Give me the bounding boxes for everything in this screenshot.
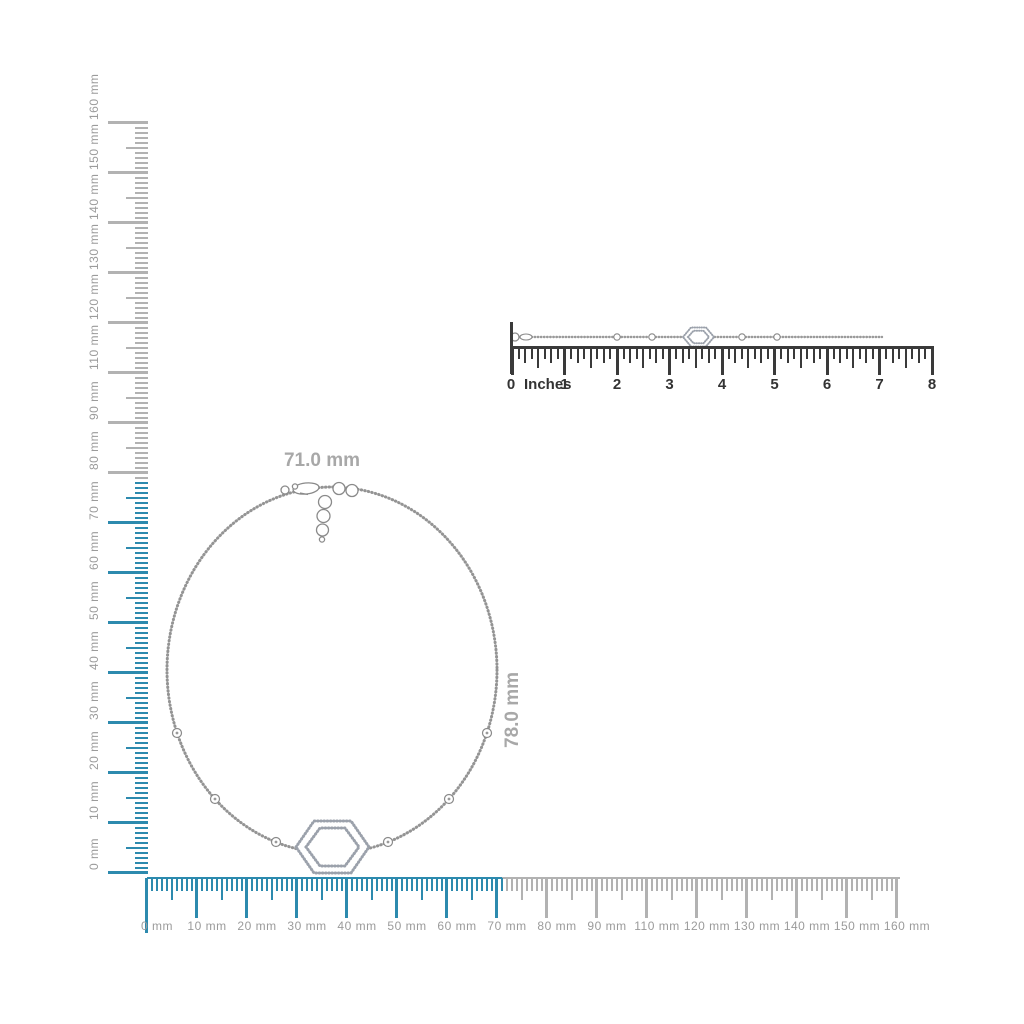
v-ruler-tick [135,852,148,854]
v-ruler-tick [135,127,148,129]
v-ruler-tick [135,437,148,439]
v-ruler-tick [108,171,148,174]
v-ruler-tick [135,612,148,614]
inch-ruler-tick [511,348,514,375]
inch-ruler-tick [531,348,533,359]
v-ruler-tick [135,287,148,289]
h-ruler-tick [651,878,653,891]
v-ruler-tick [135,537,148,539]
v-ruler-tick [135,387,148,389]
v-ruler-tick [126,747,148,749]
v-ruler-tick [108,871,148,874]
h-ruler-tick [406,878,408,891]
lobster-clasp [281,482,358,497]
inches-number-label: 7 [875,376,883,393]
v-ruler-tick [135,712,148,714]
v-ruler-tick [108,271,148,274]
inch-ruler-tick [741,348,743,359]
v-ruler-tick [135,187,148,189]
h-ruler-tick [711,878,713,891]
v-ruler-tick [108,221,148,224]
h-ruler-tick [271,878,273,900]
v-ruler-tick [126,797,148,799]
h-ruler-tick [256,878,258,891]
h-ruler-tick [841,878,843,891]
v-ruler-tick [135,787,148,789]
h-ruler-tick [301,878,303,891]
inches-number-label: 8 [928,376,936,393]
v-ruler-tick [135,602,148,604]
h-ruler-tick [526,878,528,891]
inch-ruler-tick [793,348,795,359]
v-ruler-tick [108,671,148,674]
h-ruler-tick [751,878,753,891]
v-ruler-tick [135,157,148,159]
inch-ruler-tick [911,348,913,359]
h-ruler-tick [845,878,848,918]
h-ruler-tick [166,878,168,891]
h-ruler-tick [595,878,598,918]
v-ruler-tick [135,752,148,754]
inch-ruler-tick [924,348,926,359]
v-ruler-tick [135,662,148,664]
v-ruler-tick [135,542,148,544]
v-ruler-tick [135,142,148,144]
v-ruler-tick [135,757,148,759]
v-ruler-tick [135,267,148,269]
inch-ruler-tick [636,348,638,359]
v-ruler-tick [135,687,148,689]
h-ruler-tick [181,878,183,891]
v-ruler-tick [135,607,148,609]
h-ruler-tick [756,878,758,891]
h-ruler-tick [616,878,618,891]
h-ruler-tick [545,878,548,918]
h-ruler-tick [481,878,483,891]
inch-ruler-tick [668,348,671,375]
v-ruler-tick [135,807,148,809]
v-ruler-tick [135,682,148,684]
v-ruler-tick [135,417,148,419]
h-ruler-tick [471,878,473,900]
h-ruler-tick [351,878,353,891]
v-ruler-tick [135,742,148,744]
v-ruler-tick [135,652,148,654]
h-ruler-tick [201,878,203,891]
h-ruler-tick [356,878,358,891]
inch-ruler-tick [773,348,776,375]
h-ruler-tick [541,878,543,891]
v-ruler-tick [135,592,148,594]
h-ruler-tick [791,878,793,891]
h-ruler-tick [231,878,233,891]
v-ruler-tick [135,617,148,619]
v-ruler-tick [135,232,148,234]
v-ruler-tick [135,707,148,709]
inch-ruler-tick [524,348,526,363]
v-ruler-tick [108,771,148,774]
h-ruler-tick [886,878,888,891]
v-ruler-tick [135,457,148,459]
inch-ruler-tick [570,348,572,359]
v-ruler-tick [135,802,148,804]
inch-ruler-tick [813,348,815,363]
h-ruler-tick [386,878,388,891]
v-ruler-tick [135,862,148,864]
v-ruler-tick [108,621,148,624]
v-ruler-tick [135,732,148,734]
inches-zero-label: 0 [507,376,515,393]
h-ruler-tick [721,878,723,900]
v-ruler-tick [135,132,148,134]
h-ruler-tick [736,878,738,891]
h-ruler-tick [571,878,573,900]
v-ruler-tick [135,432,148,434]
v-ruler-tick [135,242,148,244]
h-ruler-tick [611,878,613,891]
inch-ruler-tick [859,348,861,359]
v-ruler-tick [135,212,148,214]
h-ruler-tick [671,878,673,900]
inch-ruler-tick [518,348,520,359]
h-ruler-tick [476,878,478,891]
inch-ruler-tick [577,348,579,363]
inch-ruler-tick [767,348,769,359]
h-ruler-tick [501,878,503,891]
h-ruler-tick [566,878,568,891]
inches-unit-label: Inches [524,376,572,393]
inch-ruler-tick [590,348,592,368]
jewelry-artwork [0,0,1024,1024]
v-ruler-tick [135,637,148,639]
v-ruler-tick [135,582,148,584]
h-ruler-tick [311,878,313,891]
inch-ruler-tick [583,348,585,359]
h-ruler-tick [306,878,308,891]
v-ruler-tick [135,442,148,444]
h-ruler-label: 50 mm [387,919,426,933]
inch-ruler-tick [688,348,690,359]
v-ruler-tick [126,447,148,449]
v-ruler-tick [135,467,148,469]
v-ruler-tick [135,477,148,479]
h-ruler-tick [645,878,648,918]
inch-ruler-tick [708,348,710,363]
v-ruler-tick [126,247,148,249]
h-ruler-tick [395,878,398,918]
v-ruler-tick [135,827,148,829]
inch-ruler-tick [885,348,887,359]
v-ruler-tick [135,207,148,209]
h-ruler-tick [891,878,893,891]
v-ruler-tick [108,471,148,474]
h-ruler-tick [666,878,668,891]
v-ruler-tick [135,277,148,279]
v-ruler-tick [108,721,148,724]
h-ruler-tick [186,878,188,891]
h-ruler-tick [661,878,663,891]
v-ruler-tick [135,767,148,769]
v-ruler-tick [135,487,148,489]
v-ruler-tick [135,857,148,859]
h-ruler-label: 30 mm [287,919,326,933]
h-ruler-tick [606,878,608,891]
h-ruler-tick [811,878,813,891]
v-ruler-tick [135,832,148,834]
h-ruler-tick [491,878,493,891]
v-ruler-tick [135,812,148,814]
v-ruler-tick [135,402,148,404]
v-ruler-tick [135,317,148,319]
v-ruler-tick [135,407,148,409]
product-measurement-canvas: 160 mm150 mm140 mm130 mm120 mm110 mm90 m… [0,0,1024,1024]
v-ruler-tick [135,452,148,454]
v-ruler-tick [126,397,148,399]
v-ruler-tick [135,567,148,569]
h-ruler-tick [581,878,583,891]
v-ruler-tick [126,697,148,699]
width-measurement-label: 71.0 mm [284,450,360,472]
v-ruler-tick [135,462,148,464]
v-ruler-tick [135,262,148,264]
inch-ruler-tick [682,348,684,363]
v-ruler-tick [135,362,148,364]
inch-ruler-tick [701,348,703,359]
v-ruler-tick [135,257,148,259]
h-ruler-tick [801,878,803,891]
h-ruler-tick [441,878,443,891]
inch-ruler-tick [609,348,611,359]
v-ruler-tick [135,312,148,314]
h-ruler-tick [291,878,293,891]
h-ruler-tick [656,878,658,891]
h-ruler-tick [731,878,733,891]
v-ruler-tick [135,337,148,339]
v-ruler-tick [135,217,148,219]
h-ruler-tick [786,878,788,891]
v-ruler-tick [135,192,148,194]
v-ruler-tick [135,562,148,564]
inch-ruler-tick [537,348,539,368]
v-ruler-tick [135,482,148,484]
inch-ruler-tick [905,348,907,368]
h-ruler-tick [866,878,868,891]
inch-ruler-tick [603,348,605,363]
h-ruler-tick [681,878,683,891]
h-ruler-tick [445,878,448,918]
v-ruler-tick [135,762,148,764]
h-ruler-tick [531,878,533,891]
h-ruler-tick [591,878,593,891]
v-ruler-tick [135,657,148,659]
inch-ruler-tick [819,348,821,359]
h-ruler-label: 90 mm [587,919,626,933]
h-ruler-tick [551,878,553,891]
h-ruler-tick [826,878,828,891]
inch-ruler-tick [550,348,552,363]
h-ruler-tick [506,878,508,891]
v-ruler-tick [135,727,148,729]
pendant-hexagon [296,821,369,873]
h-ruler-label: 0 mm [141,919,173,933]
h-ruler-tick [411,878,413,891]
inch-ruler-tick [623,348,625,359]
v-ruler-tick [135,632,148,634]
v-ruler-tick [126,847,148,849]
inch-ruler-tick [655,348,657,363]
v-ruler-tick [135,782,148,784]
v-ruler-tick [135,182,148,184]
h-ruler-tick [851,878,853,891]
v-ruler-tick [126,597,148,599]
v-ruler-tick [135,152,148,154]
inch-ruler-tick [800,348,802,368]
inch-ruler-tick [695,348,697,368]
v-ruler-tick [135,162,148,164]
h-ruler-tick [701,878,703,891]
h-ruler-tick [466,878,468,891]
v-ruler-tick [135,342,148,344]
v-ruler-tick [135,667,148,669]
h-ruler-tick [241,878,243,891]
v-ruler-tick [135,392,148,394]
h-ruler-tick [366,878,368,891]
v-ruler-tick [135,502,148,504]
h-ruler-tick [216,878,218,891]
v-ruler-tick [135,292,148,294]
h-ruler-tick [716,878,718,891]
inline-chain [511,328,882,347]
h-ruler-tick [861,878,863,891]
h-ruler-label: 70 mm [487,919,526,933]
inch-ruler-tick [839,348,841,363]
h-ruler-tick [151,878,153,891]
v-ruler-tick [135,507,148,509]
inch-ruler-tick [616,348,619,375]
inch-ruler-tick [872,348,874,359]
h-ruler-tick [821,878,823,900]
v-ruler-tick [135,777,148,779]
h-ruler-label: 10 mm [187,919,226,933]
h-ruler-tick [461,878,463,891]
h-ruler-tick [641,878,643,891]
inch-ruler-tick [754,348,756,359]
h-ruler-tick [316,878,318,891]
inch-ruler-tick [780,348,782,359]
inches-number-label: 4 [718,376,726,393]
h-ruler-tick [326,878,328,891]
v-ruler-tick [135,702,148,704]
inch-ruler-tick [760,348,762,363]
inch-ruler-tick [918,348,920,363]
v-ruler-tick [135,587,148,589]
h-ruler-label: 160 mm [884,919,930,933]
v-ruler-tick [108,421,148,424]
inch-ruler-tick [662,348,664,359]
h-ruler-label: 110 mm [634,919,679,933]
h-ruler-tick [341,878,343,891]
inch-ruler-tick [629,348,631,363]
v-ruler-tick [108,571,148,574]
inch-ruler-tick [557,348,559,359]
v-ruler-tick [135,627,148,629]
h-ruler-tick [191,878,193,891]
inch-ruler-tick [806,348,808,359]
inch-ruler-tick [675,348,677,359]
inch-ruler-tick [649,348,651,359]
v-ruler-tick [135,307,148,309]
v-ruler-tick [108,121,148,124]
h-ruler-tick [806,878,808,891]
h-ruler-tick [221,878,223,900]
h-ruler-tick [536,878,538,891]
h-ruler-label: 140 mm [784,919,830,933]
h-ruler-tick [856,878,858,891]
h-ruler-tick [401,878,403,891]
v-ruler-tick [135,332,148,334]
inch-ruler-tick [898,348,900,359]
v-ruler-tick [126,197,148,199]
h-ruler-tick [206,878,208,891]
v-ruler-tick [135,532,148,534]
extension-chain [317,496,332,543]
h-ruler-tick [626,878,628,891]
h-ruler-tick [876,878,878,891]
v-ruler-tick [135,237,148,239]
h-ruler-tick [636,878,638,891]
h-ruler-tick [371,878,373,900]
v-ruler-tick [108,371,148,374]
h-ruler-tick [695,878,698,918]
v-ruler-tick [135,577,148,579]
h-ruler-tick [871,878,873,900]
h-ruler-label: 20 mm [237,919,276,933]
v-ruler-tick [135,177,148,179]
h-ruler-tick [261,878,263,891]
h-ruler-tick [226,878,228,891]
v-ruler-tick [135,692,148,694]
h-ruler-tick [361,878,363,891]
v-ruler-tick [135,817,148,819]
h-ruler-tick [345,878,348,918]
inch-ruler-tick [865,348,867,363]
inch-ruler-tick [721,348,724,375]
h-ruler-tick [495,878,498,918]
inch-ruler-tick [931,348,934,375]
h-ruler-tick [431,878,433,891]
v-ruler-tick [135,492,148,494]
inches-number-label: 2 [613,376,621,393]
v-ruler-tick [135,792,148,794]
h-ruler-tick [426,878,428,891]
h-ruler-tick [586,878,588,891]
v-ruler-tick [135,867,148,869]
v-ruler-tick [135,367,148,369]
h-ruler-tick [795,878,798,918]
inch-ruler-tick [563,348,566,375]
v-ruler-tick [126,647,148,649]
inch-ruler-tick [787,348,789,363]
h-ruler-tick [556,878,558,891]
h-ruler-tick [486,878,488,891]
v-ruler-tick [135,517,148,519]
v-ruler-tick [126,347,148,349]
inch-ruler-tick [747,348,749,368]
inch-ruler-tick [642,348,644,368]
v-ruler-tick [135,252,148,254]
h-ruler-tick [456,878,458,891]
h-ruler-tick [236,878,238,891]
